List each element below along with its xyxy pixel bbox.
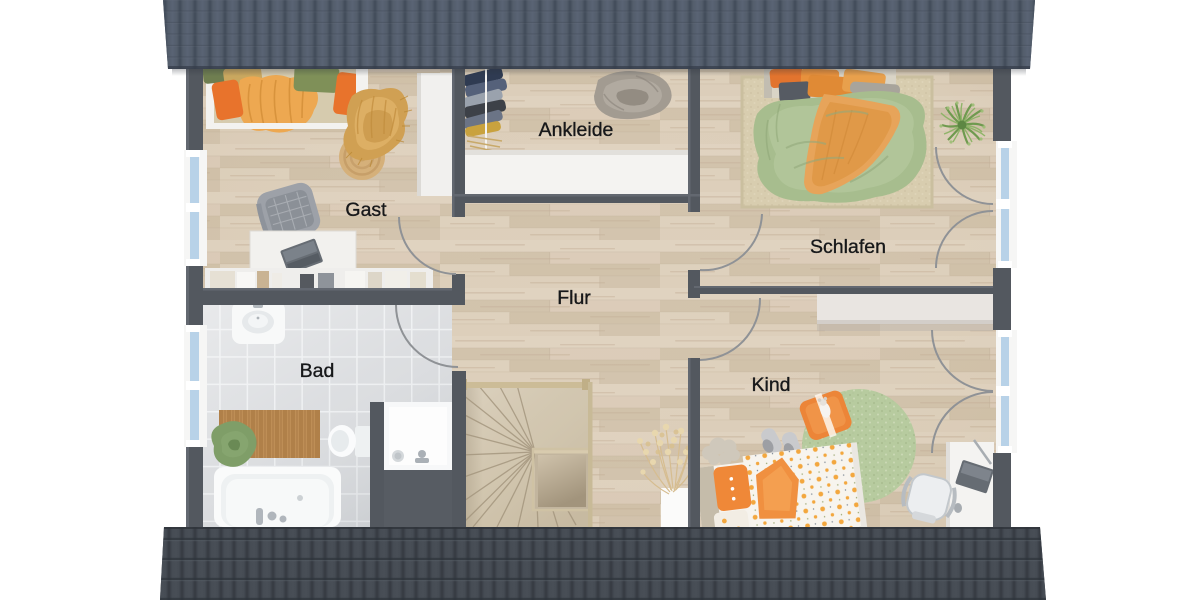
svg-text:Flur: Flur [557, 287, 591, 309]
svg-text:Bad: Bad [300, 360, 335, 382]
svg-text:Kind: Kind [751, 374, 790, 396]
svg-text:Gast: Gast [345, 199, 387, 221]
svg-text:Schlafen: Schlafen [810, 236, 886, 258]
svg-text:Ankleide: Ankleide [539, 119, 614, 141]
